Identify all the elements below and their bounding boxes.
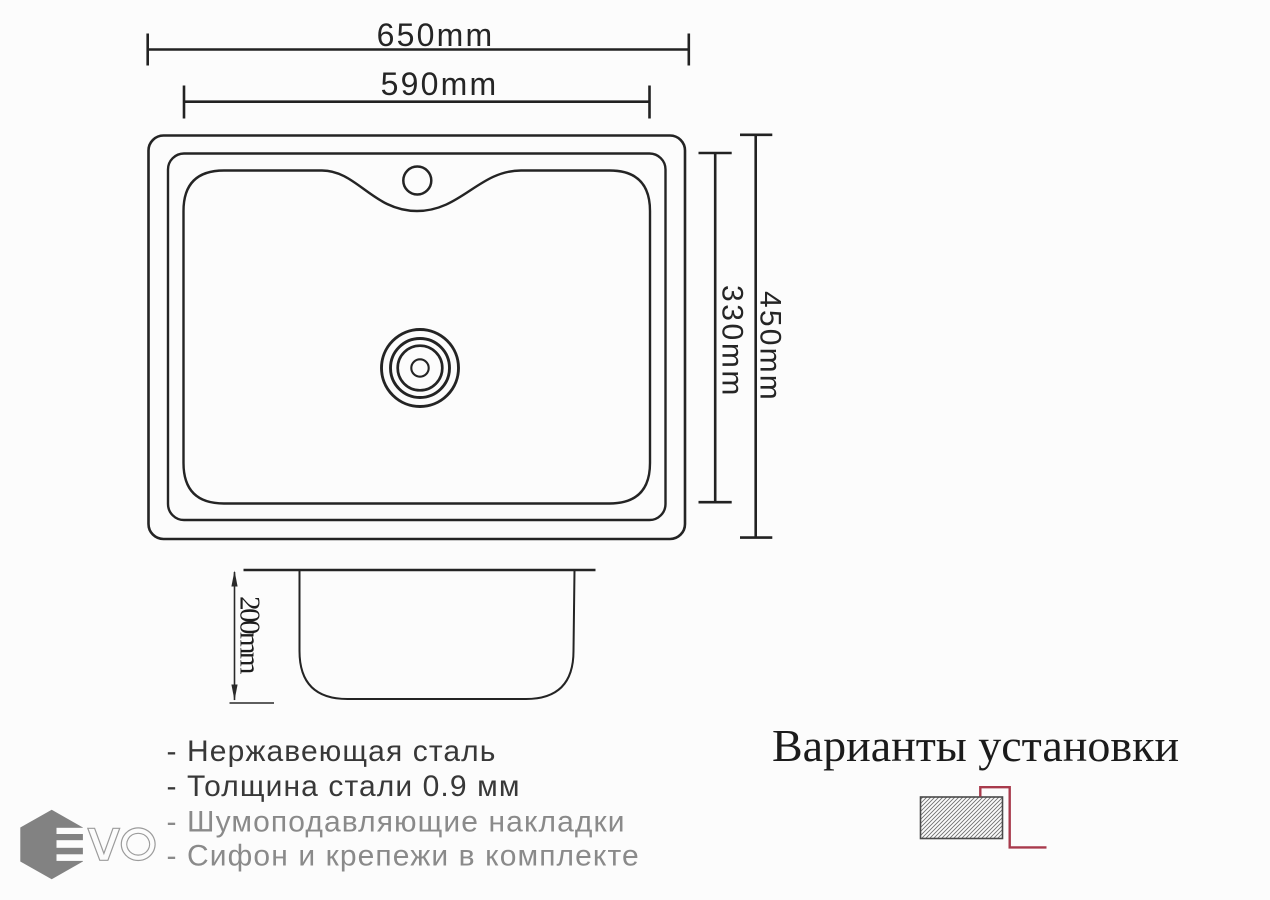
svg-text:330mm: 330mm <box>715 285 748 398</box>
svg-text:- Толщина стали 0.9 мм: - Толщина стали 0.9 мм <box>167 770 521 803</box>
svg-text:- Сифон и крепежи в комплекте: - Сифон и крепежи в комплекте <box>167 840 640 873</box>
svg-text:Варианты установки: Варианты установки <box>772 720 1179 771</box>
svg-text:590mm: 590mm <box>381 66 499 102</box>
svg-text:- Нержавеющая сталь: - Нержавеющая сталь <box>167 735 497 768</box>
svg-text:650mm: 650mm <box>377 17 495 53</box>
svg-text:450mm: 450mm <box>754 291 787 402</box>
svg-text:- Шумоподавляющие накладки: - Шумоподавляющие накладки <box>167 806 626 839</box>
svg-text:200mm: 200mm <box>233 596 265 675</box>
